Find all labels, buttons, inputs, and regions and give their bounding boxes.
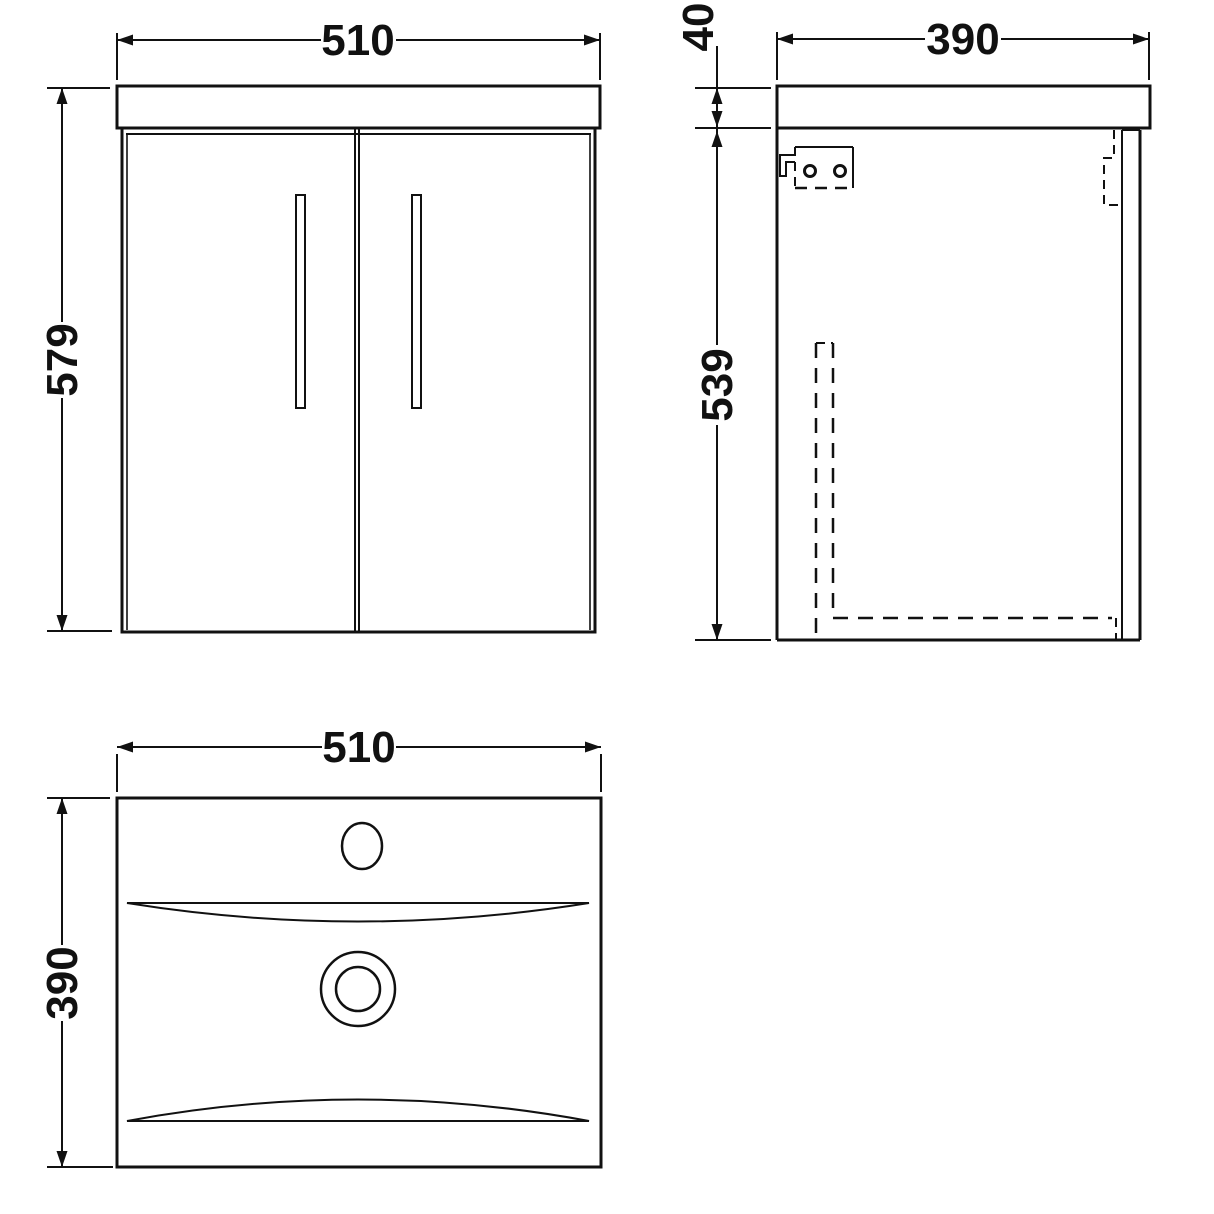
dim-label-front-width: 510 — [321, 16, 394, 65]
dim-label-plan-width: 510 — [322, 723, 395, 772]
side-countertop — [777, 86, 1150, 128]
dim-label-side-depth: 390 — [926, 15, 999, 64]
technical-drawing: 510 579 — [0, 0, 1214, 1214]
dim-label-side-height: 539 — [693, 348, 742, 421]
dim-label-plan-depth: 390 — [38, 946, 87, 1019]
dim-label-counter-thickness: 40 — [674, 3, 723, 52]
door-handle-left — [296, 195, 305, 408]
dim-label-front-height: 579 — [38, 323, 87, 396]
front-countertop — [117, 86, 600, 128]
front-view: 510 579 — [38, 16, 600, 632]
door-handle-right — [412, 195, 421, 408]
